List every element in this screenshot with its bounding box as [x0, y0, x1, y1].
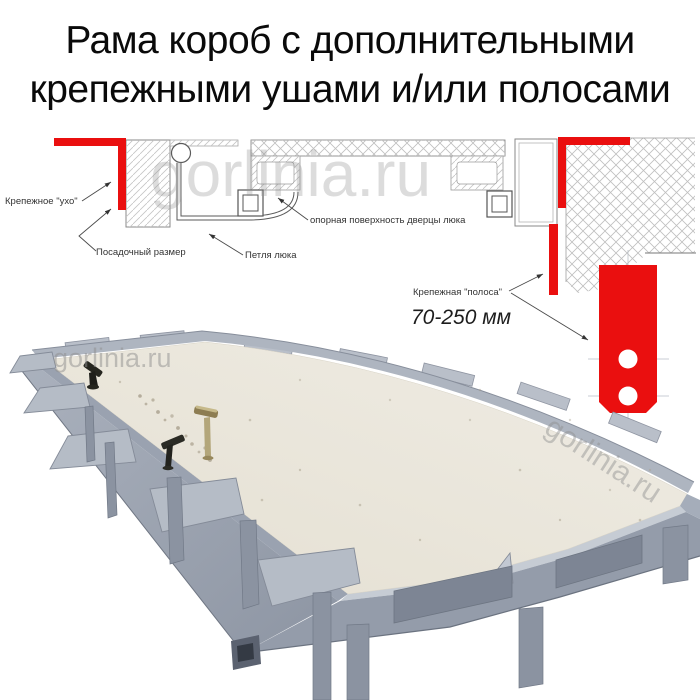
square-tube-right	[487, 191, 512, 217]
page-title-line-2: крепежными ушами и/или полосами	[0, 65, 700, 114]
label-mounting-strip: Крепежная "полоса"	[413, 287, 502, 298]
label-mounting-ear: Крепежное "ухо"	[5, 196, 78, 207]
label-hatch-hinge: Петля люка	[245, 250, 297, 261]
product-image: Крепежное "ухо" Посадочный размер Петля …	[0, 0, 700, 700]
mounting-strip-section	[549, 224, 558, 295]
hatch-photo: gorlinia.ru gorlinia.ru	[10, 331, 700, 700]
frame-profile-right	[515, 139, 557, 226]
label-seating-size: Посадочный размер	[96, 247, 186, 258]
page-title: Рама короб с дополнительными крепежными …	[0, 16, 700, 114]
corner-tube	[231, 635, 261, 670]
label-support-surface: опорная поверхность дверцы люка	[310, 215, 466, 226]
strip-hole-bottom	[619, 387, 638, 406]
mounting-strip-illustration	[588, 250, 669, 427]
page-title-line-1: Рама короб с дополнительными	[0, 16, 700, 65]
label-strip-range: 70-250 мм	[411, 306, 511, 329]
watermark-photo-left: gorlinia.ru	[53, 343, 172, 373]
watermark-drawing: gorlinia.ru	[150, 138, 431, 210]
strip-hole-top	[619, 350, 638, 369]
